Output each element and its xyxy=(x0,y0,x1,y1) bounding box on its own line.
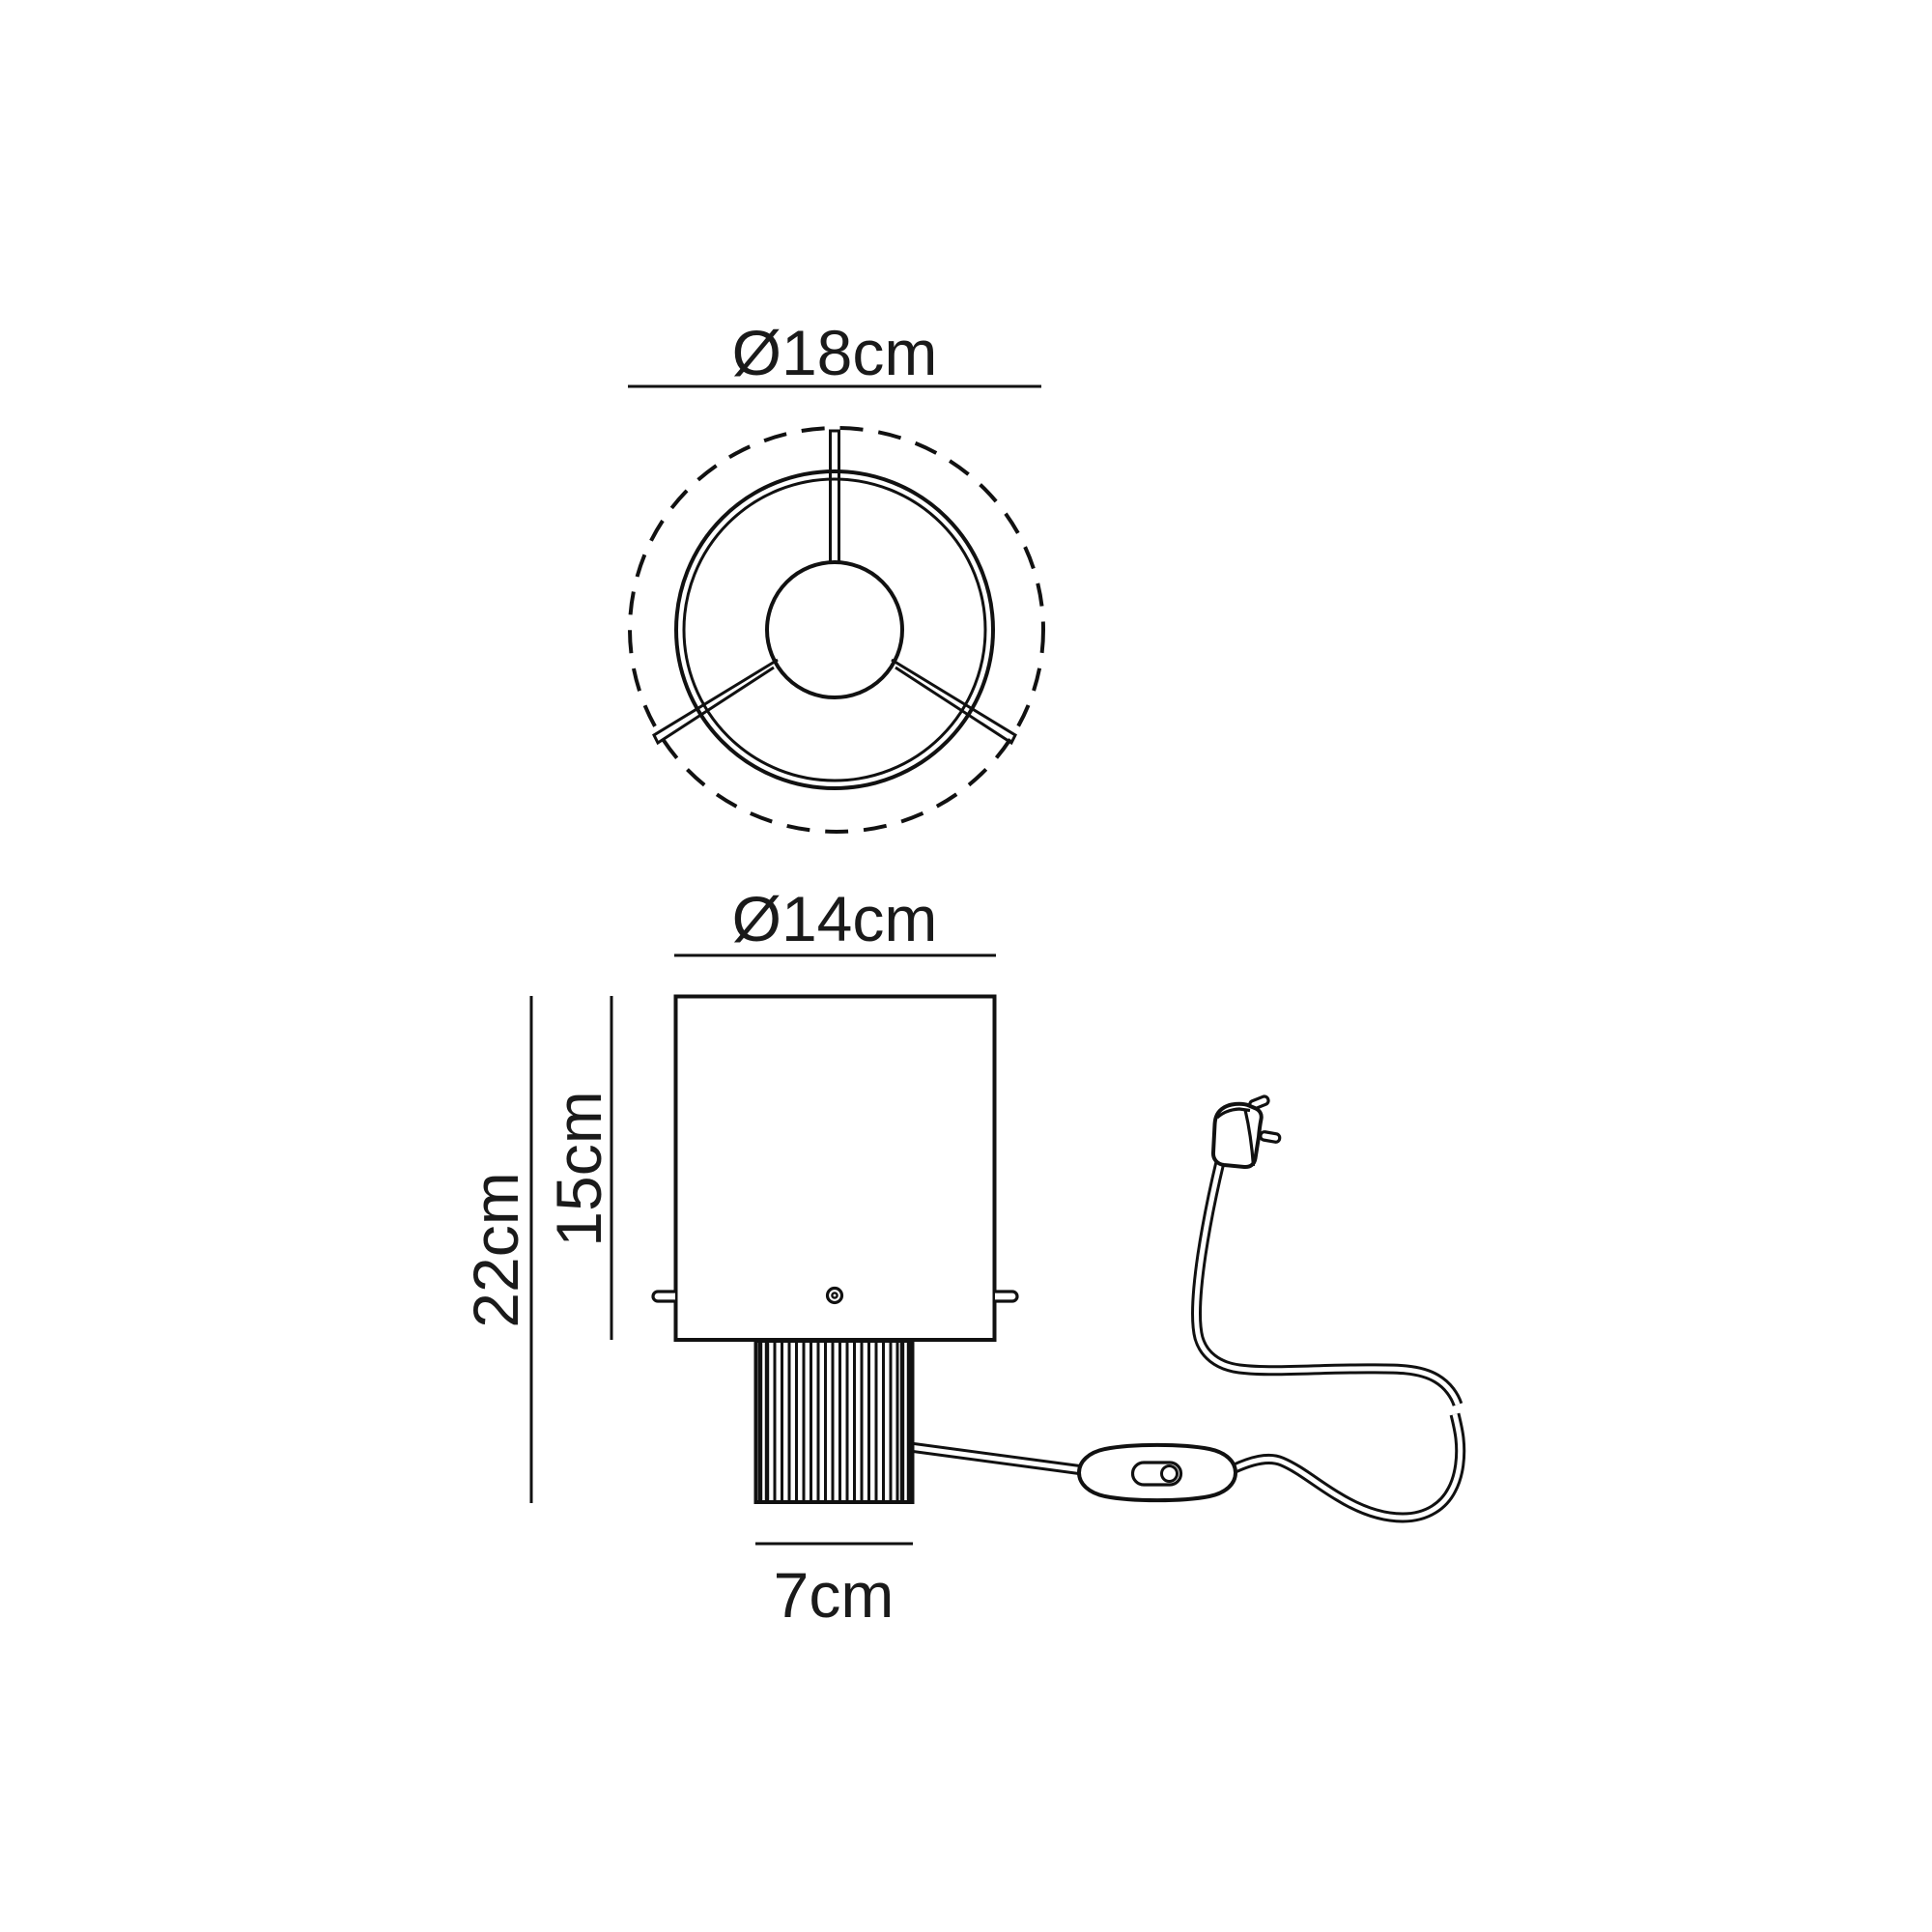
lamp-dimension-diagram: Ø18cm Ø14cm xyxy=(0,0,1932,1932)
cord-loop-to-plug xyxy=(1196,1162,1458,1405)
plug-prong-side xyxy=(1260,1131,1280,1143)
label-shade-diameter: Ø14cm xyxy=(732,883,938,954)
cord-switch-to-loop xyxy=(1233,1414,1461,1518)
label-base-width: 7cm xyxy=(774,1559,895,1631)
dimension-shade-height: 15cm xyxy=(543,996,614,1340)
cord-segment-core xyxy=(1233,1414,1461,1518)
outer-diameter-dashed-circle xyxy=(630,428,1043,832)
top-view xyxy=(630,428,1043,832)
shade-peg-right xyxy=(995,1292,1017,1301)
label-total-height: 22cm xyxy=(460,1172,531,1327)
cord-base-to-switch xyxy=(910,1447,1083,1470)
switch-slider-button xyxy=(1162,1466,1178,1482)
shade-peg-left xyxy=(653,1292,675,1301)
dimension-total-height: 22cm xyxy=(460,996,531,1503)
fluted-base xyxy=(756,1341,913,1502)
lamp-holder-circle xyxy=(767,562,902,697)
label-top-diameter: Ø18cm xyxy=(732,317,938,388)
label-shade-height: 15cm xyxy=(543,1091,614,1246)
diagram-canvas: Ø18cm Ø14cm xyxy=(0,0,1932,1932)
cord-segment-core xyxy=(910,1447,1083,1470)
inline-switch xyxy=(1079,1445,1236,1500)
dimension-base-width: 7cm xyxy=(755,1544,913,1631)
dimension-shade-diameter: Ø14cm xyxy=(674,883,996,955)
side-view xyxy=(653,997,1461,1519)
spoke-top xyxy=(831,431,839,562)
dimension-top-diameter: Ø18cm xyxy=(628,317,1041,388)
uk-plug xyxy=(1213,1095,1280,1167)
shade-knob-center xyxy=(832,1293,837,1297)
spoke-lower-left xyxy=(654,660,778,743)
shade-ring-outer-circle xyxy=(676,471,993,788)
shade-ring-inner-circle xyxy=(684,479,985,781)
spoke-lower-right xyxy=(892,660,1015,743)
